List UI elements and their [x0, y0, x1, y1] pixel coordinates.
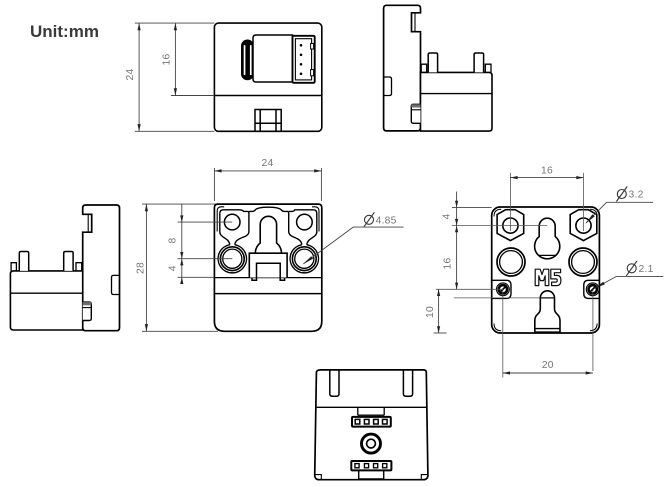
svg-text:16: 16 — [162, 54, 173, 66]
svg-text:4: 4 — [168, 265, 179, 271]
svg-text:24: 24 — [125, 69, 136, 81]
svg-text:8: 8 — [168, 237, 179, 243]
svg-text:2.1: 2.1 — [639, 264, 654, 275]
svg-text:4.85: 4.85 — [376, 215, 397, 226]
svg-text:10: 10 — [425, 306, 436, 318]
svg-text:Unit:mm: Unit:mm — [30, 22, 99, 41]
svg-text:20: 20 — [542, 360, 554, 371]
svg-text:4: 4 — [442, 213, 453, 219]
svg-text:24: 24 — [262, 158, 274, 169]
svg-text:3.2: 3.2 — [629, 190, 644, 201]
svg-text:16: 16 — [541, 166, 553, 177]
svg-text:28: 28 — [136, 262, 147, 274]
svg-text:16: 16 — [443, 258, 454, 270]
